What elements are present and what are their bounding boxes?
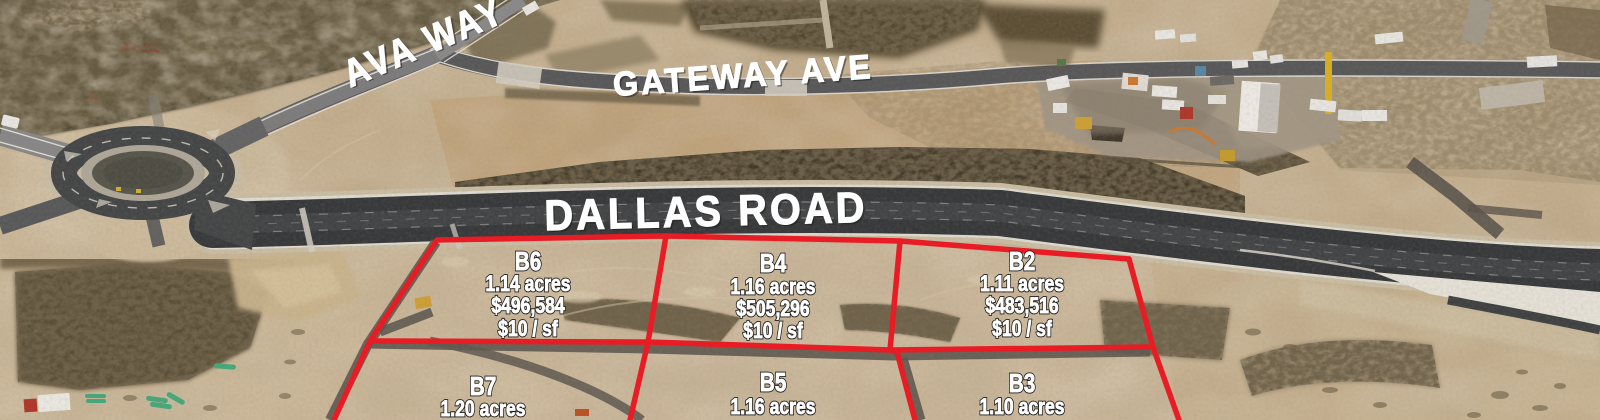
svg-text:B5: B5: [760, 368, 787, 397]
svg-text:1.16 acres: 1.16 acres: [730, 395, 815, 419]
svg-text:B2: B2: [1009, 247, 1036, 276]
svg-text:1.10 acres: 1.10 acres: [979, 395, 1064, 419]
svg-text:$496,584: $496,584: [491, 294, 564, 318]
svg-text:B4: B4: [760, 249, 787, 278]
svg-text:B3: B3: [1009, 369, 1036, 398]
svg-text:1.16 acres: 1.16 acres: [730, 275, 815, 299]
svg-text:$10 / sf: $10 / sf: [498, 317, 558, 341]
svg-text:DALLAS ROAD: DALLAS ROAD: [544, 183, 868, 239]
svg-text:B6: B6: [515, 247, 542, 276]
svg-text:$483,516: $483,516: [985, 294, 1058, 318]
svg-text:$505,296: $505,296: [736, 297, 809, 321]
svg-text:1.14 acres: 1.14 acres: [485, 272, 570, 296]
svg-text:B7: B7: [470, 372, 497, 401]
svg-text:1.11 acres: 1.11 acres: [980, 272, 1064, 296]
svg-text:$10 / sf: $10 / sf: [743, 319, 803, 343]
svg-text:$10 / sf: $10 / sf: [992, 317, 1052, 341]
svg-text:1.20 acres: 1.20 acres: [440, 397, 525, 420]
